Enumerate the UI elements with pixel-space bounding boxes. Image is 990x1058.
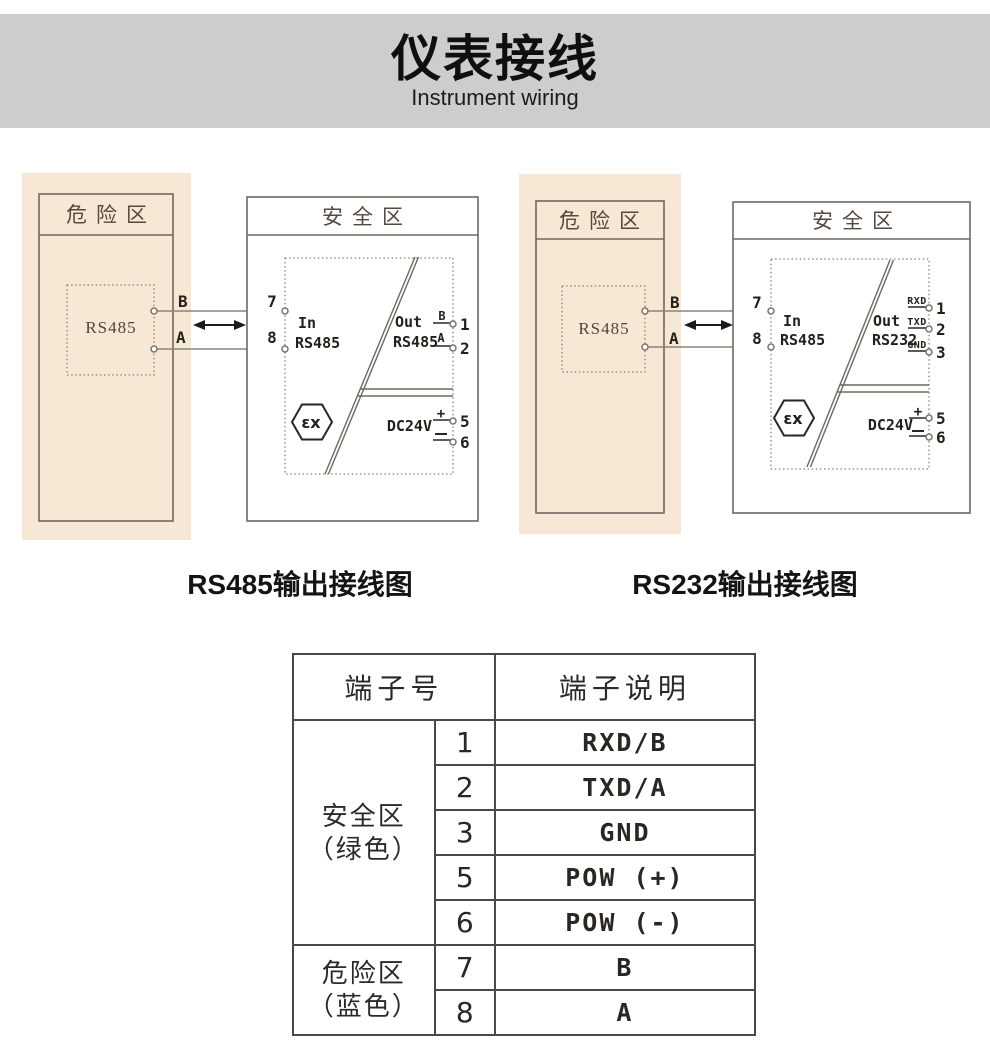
terminal-desc-cell: POW (+) xyxy=(495,855,755,900)
wire-a-label: A xyxy=(176,328,186,347)
terminal-table: 端子号 端子说明 安全区 （绿色） 1 RXD/B 2 TXD/A 3 GND … xyxy=(292,653,756,1036)
header-banner: 仪表接线 Instrument wiring xyxy=(0,14,990,128)
terminal-desc-cell: A xyxy=(495,990,755,1035)
svg-text:εx: εx xyxy=(783,409,803,428)
bidirectional-arrow-icon xyxy=(684,320,733,330)
terminal-no-cell: 2 xyxy=(435,765,495,810)
group-danger-zone-cell: 危险区 （蓝色） xyxy=(293,945,435,1035)
power-6-num: 6 xyxy=(936,428,946,447)
in-label: In xyxy=(783,312,801,330)
table-header-terminal-no: 端子号 xyxy=(293,654,495,720)
out-label: Out xyxy=(395,313,422,331)
safe-zone-box xyxy=(247,197,478,521)
danger-zone-label: 危险区 xyxy=(559,209,649,233)
rs232-wiring-diagram: 危险区 RS485 B A 安全区 7 8 In RS485 εx Out xyxy=(505,168,990,548)
out-label: Out xyxy=(873,312,900,330)
terminal-8-label: 8 xyxy=(752,329,762,348)
terminal-desc-cell: TXD/A xyxy=(495,765,755,810)
out-1-num: 1 xyxy=(460,315,470,334)
group-label-line1: 安全区 xyxy=(294,800,434,833)
terminal-no-cell: 5 xyxy=(435,855,495,900)
out-2-num: 2 xyxy=(460,339,470,358)
terminal-dot xyxy=(768,308,774,314)
terminal-desc-cell: B xyxy=(495,945,755,990)
group-label-line1: 危险区 xyxy=(294,957,434,990)
hazard-area-background xyxy=(22,173,191,540)
terminal-dot xyxy=(282,308,288,314)
terminal-no-cell: 1 xyxy=(435,720,495,765)
wire-a-label: A xyxy=(669,329,679,348)
danger-zone-label: 危险区 xyxy=(66,203,156,227)
power-label: DC24V xyxy=(868,416,913,434)
group-label-line2: （绿色） xyxy=(294,833,434,866)
out-type-label: RS485 xyxy=(393,333,438,351)
out-2-num: 2 xyxy=(936,320,946,339)
terminal-dot xyxy=(151,308,157,314)
wire-b-label: B xyxy=(178,292,188,311)
page-subtitle: Instrument wiring xyxy=(411,86,579,110)
safe-zone-label: 安全区 xyxy=(812,209,902,233)
out-3-num: 3 xyxy=(936,343,946,362)
out-1-num: 1 xyxy=(936,299,946,318)
terminal-dot xyxy=(926,415,932,421)
wire-b-label: B xyxy=(670,293,680,312)
terminal-no-cell: 8 xyxy=(435,990,495,1035)
terminal-dot xyxy=(450,439,456,445)
terminal-dot xyxy=(926,349,932,355)
device-label: RS485 xyxy=(85,318,136,337)
terminal-desc-cell: RXD/B xyxy=(495,720,755,765)
svg-text:εx: εx xyxy=(301,413,321,432)
terminal-dot xyxy=(282,346,288,352)
out-3-tag: GND xyxy=(907,340,927,351)
terminal-desc-cell: POW (-) xyxy=(495,900,755,945)
group-label-line2: （蓝色） xyxy=(294,990,434,1023)
power-6-num: 6 xyxy=(460,433,470,452)
terminal-no-cell: 7 xyxy=(435,945,495,990)
bidirectional-arrow-icon xyxy=(193,320,246,330)
terminal-dot xyxy=(926,305,932,311)
in-label: In xyxy=(298,314,316,332)
terminal-desc-cell: GND xyxy=(495,810,755,855)
page-title: 仪表接线 xyxy=(391,32,599,86)
terminal-dot xyxy=(768,344,774,350)
terminal-7-label: 7 xyxy=(752,293,762,312)
terminal-dot xyxy=(450,321,456,327)
group-safe-zone-cell: 安全区 （绿色） xyxy=(293,720,435,945)
in-type-label: RS485 xyxy=(780,331,825,349)
safe-zone-label: 安全区 xyxy=(322,205,412,229)
out-1-tag: B xyxy=(438,309,445,323)
page: 仪表接线 Instrument wiring 危险区 RS485 B A 安全区 xyxy=(0,0,990,1058)
out-1-tag: RXD xyxy=(907,296,927,307)
terminal-8-label: 8 xyxy=(267,328,277,347)
terminal-no-cell: 3 xyxy=(435,810,495,855)
terminal-dot xyxy=(450,418,456,424)
in-type-label: RS485 xyxy=(295,334,340,352)
terminal-no-cell: 6 xyxy=(435,900,495,945)
terminal-dot xyxy=(926,326,932,332)
terminal-dot xyxy=(642,344,648,350)
terminal-dot xyxy=(642,308,648,314)
out-2-tag: A xyxy=(437,331,445,345)
terminal-7-label: 7 xyxy=(267,292,277,311)
power-5-num: 5 xyxy=(460,412,470,431)
device-label: RS485 xyxy=(578,319,629,338)
power-5-num: 5 xyxy=(936,409,946,428)
power-label: DC24V xyxy=(387,417,432,435)
table-header-terminal-desc: 端子说明 xyxy=(495,654,755,720)
terminal-dot xyxy=(151,346,157,352)
out-2-tag: TXD xyxy=(907,317,927,328)
terminal-dot xyxy=(926,434,932,440)
terminal-dot xyxy=(450,345,456,351)
rs485-diagram-caption: RS485输出接线图 xyxy=(150,563,450,603)
rs485-wiring-diagram: 危险区 RS485 B A 安全区 7 8 In RS485 xyxy=(15,168,505,548)
rs232-diagram-caption: RS232输出接线图 xyxy=(595,563,895,603)
